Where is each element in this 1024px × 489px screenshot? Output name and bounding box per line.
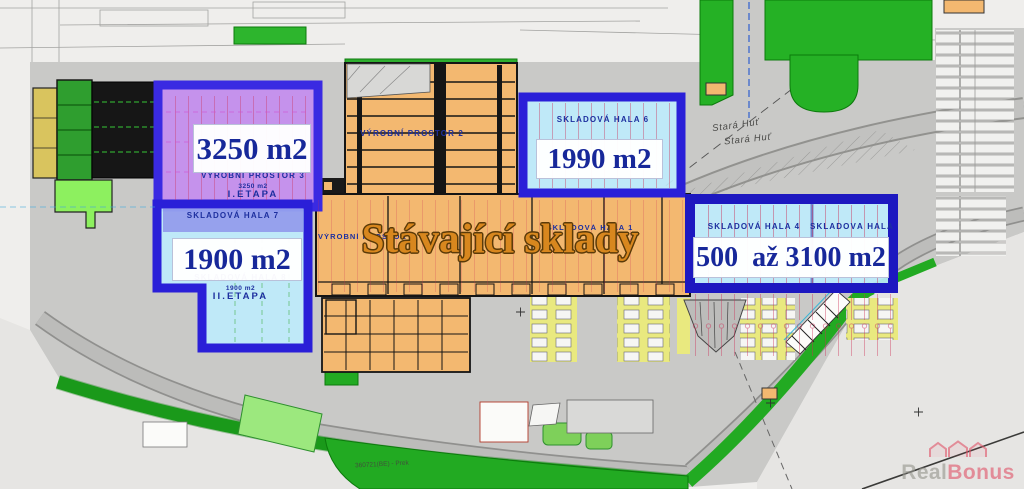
- area-label-1990m2: 1990 m2: [537, 140, 662, 178]
- prostor2-name-label: VÝROBNÍ PROSTOR 2: [352, 130, 472, 139]
- hala4-name-label: SKLADOVÁ HALA 4: [694, 223, 814, 232]
- houses-icon: [928, 440, 988, 458]
- realbonus-watermark: RealBonus: [893, 440, 1023, 483]
- hala8-stage-label: II.ETAPA: [163, 292, 318, 302]
- watermark-text-bonus: Bonus: [947, 461, 1014, 484]
- watermark-text-real: Real: [901, 461, 947, 484]
- hala5-name-label: SKLADOVÁ HALA 5: [810, 223, 898, 232]
- prostor3-stage-label: I.ETAPA: [163, 190, 343, 200]
- area-label-1900m2: 1900 m2: [173, 239, 301, 280]
- existing-warehouses-headline: Stávající sklady: [352, 213, 648, 265]
- prostor3-name-label: VÝROBNÍ PROSTOR 3: [163, 172, 343, 181]
- area-label-3250m2: 3250 m2: [194, 125, 310, 172]
- site-plan-screenshot: 3250 m2 VÝROBNÍ PROSTOR 3 3250 m2 I.ETAP…: [0, 0, 1024, 489]
- hala7-name-label: SKLADOVÁ HALA 7: [158, 212, 308, 221]
- hala6-name-label: SKLADOVÁ HALA 6: [528, 116, 678, 125]
- area-label-500-3100m2: 500 až 3100 m2: [694, 238, 888, 277]
